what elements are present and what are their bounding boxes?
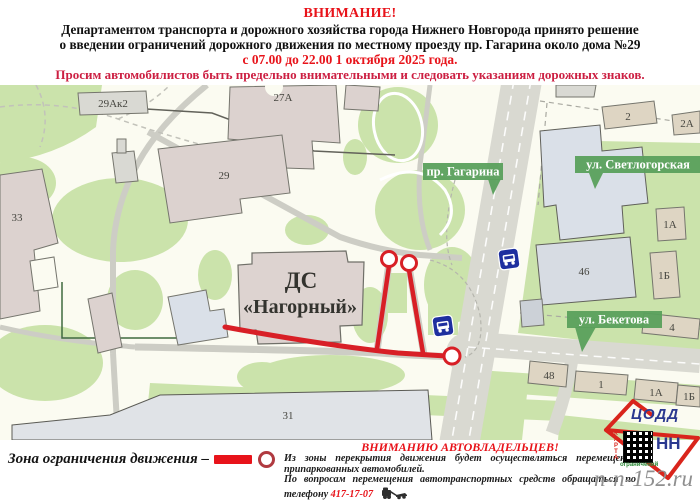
codd-org-name: ЦОДД — [631, 406, 679, 423]
svg-text:ул. Светлогорская: ул. Светлогорская — [586, 158, 690, 172]
header-line-2: о введении ограничений дорожного движени… — [0, 37, 700, 52]
svg-text:ул. Бекетова: ул. Бекетова — [579, 313, 650, 327]
building-label: 2А — [680, 118, 694, 130]
codd-logo: ЦОДД КАРТА ограничений НН n-n-152.ru — [596, 396, 700, 497]
map-legend: Зона ограничения движения – — [8, 450, 276, 469]
codd-city-label: НН — [656, 434, 681, 454]
building-label: 31 — [283, 410, 294, 422]
header-line-1: Департаментом транспорта и дорожного хоз… — [0, 22, 700, 37]
building-label: 27А — [274, 92, 293, 104]
building-label: 48 — [544, 370, 556, 382]
driver-plea: Просим автомобилистов быть предельно вни… — [0, 67, 700, 82]
closure-point-sample — [257, 450, 276, 469]
attention-title: ВНИМАНИЕ! — [0, 0, 700, 22]
building-label: 29Ак2 — [98, 98, 128, 110]
legend-label: Зона ограничения движения – — [8, 451, 209, 468]
svg-text:пр. Гагарина: пр. Гагарина — [426, 165, 500, 179]
qr-code — [623, 431, 653, 463]
watermark: n-n-152.ru — [594, 466, 693, 492]
phone-number: 417-17-07 — [331, 489, 373, 500]
svg-text:«Нагорный»: «Нагорный» — [243, 296, 357, 318]
announcement-header: ВНИМАНИЕ! Департаментом транспорта и дор… — [0, 0, 700, 85]
building-label: 1Б — [658, 270, 670, 282]
building-label: 33 — [12, 212, 24, 224]
restriction-schedule: с 07.00 до 22.00 1 октября 2025 года. — [0, 52, 700, 67]
building-label: 46 — [579, 266, 591, 278]
owners-notice-body2: По вопросам перемещения автотранспортных… — [284, 475, 636, 500]
closure-point — [444, 348, 460, 364]
city-map: 29Ак2 27А 29 33 31 2 2А 1А 1Б 46 4 48 1 … — [0, 85, 700, 440]
building-label: 2 — [625, 111, 631, 123]
bus-stop-icon — [498, 248, 521, 271]
svg-text:ДС: ДС — [285, 268, 317, 293]
restriction-line-sample — [214, 455, 252, 464]
qr-caption-vertical: КАРТА — [613, 431, 619, 461]
owners-notice: ВНИМАНИЮ АВТОВЛАДЕЛЬЦЕВ! Из зоны перекры… — [284, 441, 636, 500]
building-label: 1А — [663, 219, 677, 231]
closure-point — [382, 252, 397, 267]
building-label: 4 — [669, 322, 675, 334]
owners-notice-body1: Из зоны перекрытия движения будет осущес… — [284, 454, 636, 475]
building-label: 1 — [598, 379, 604, 391]
bus-stop-icon — [432, 315, 455, 338]
tow-truck-icon — [381, 486, 409, 500]
building-label: 29 — [219, 170, 231, 182]
closure-point — [402, 256, 417, 271]
